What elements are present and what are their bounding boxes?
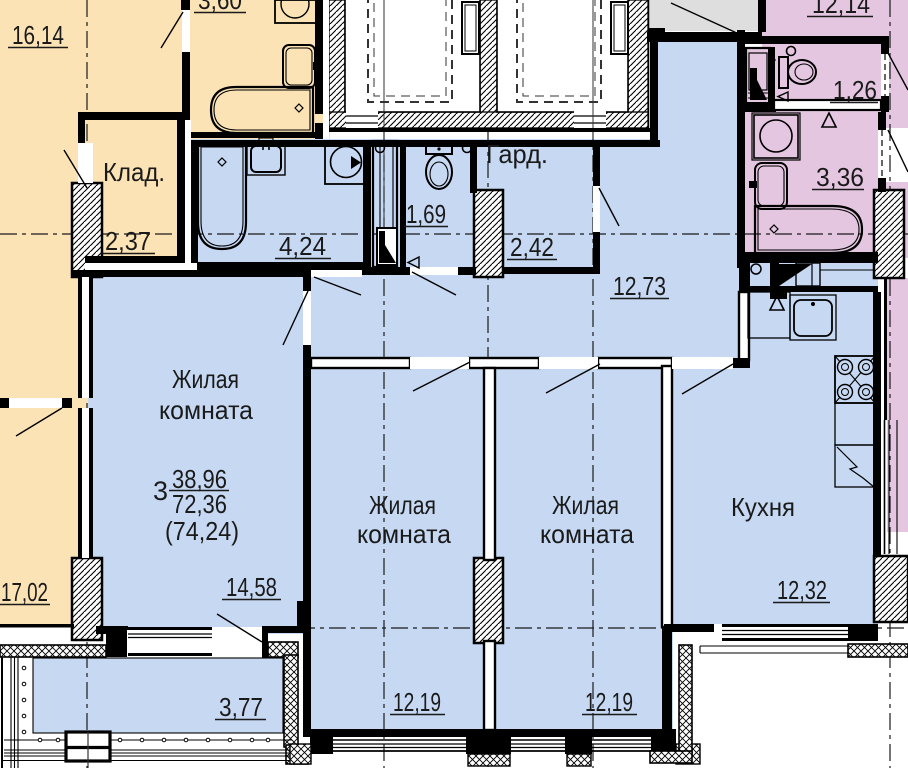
svg-text:17,02: 17,02 [1,577,48,607]
svg-text:Гард.: Гард. [486,139,548,169]
svg-text:3,77: 3,77 [219,692,263,722]
svg-text:Жилая: Жилая [552,490,619,520]
svg-text:2,37: 2,37 [105,226,151,256]
svg-text:72,36: 72,36 [172,489,227,519]
svg-text:(74,24): (74,24) [165,516,239,546]
svg-text:2,42: 2,42 [510,232,554,262]
svg-text:комната: комната [159,395,254,425]
svg-text:12,73: 12,73 [613,271,666,301]
svg-text:3,36: 3,36 [816,162,864,192]
svg-text:1,26: 1,26 [833,75,877,105]
svg-text:Жилая: Жилая [172,364,239,394]
svg-text:12,19: 12,19 [393,687,441,717]
svg-text:1,69: 1,69 [406,199,446,229]
svg-text:16,14: 16,14 [12,20,64,50]
svg-text:4,24: 4,24 [279,231,326,261]
svg-text:комната: комната [357,519,452,549]
svg-text:12,19: 12,19 [585,687,633,717]
svg-text:12,32: 12,32 [777,575,827,605]
svg-text:14,58: 14,58 [226,572,277,602]
svg-text:комната: комната [540,519,635,549]
svg-text:3: 3 [153,476,168,506]
svg-text:Кухня: Кухня [731,492,795,522]
svg-text:Клад.: Клад. [103,157,165,187]
svg-text:Жилая: Жилая [369,490,436,520]
